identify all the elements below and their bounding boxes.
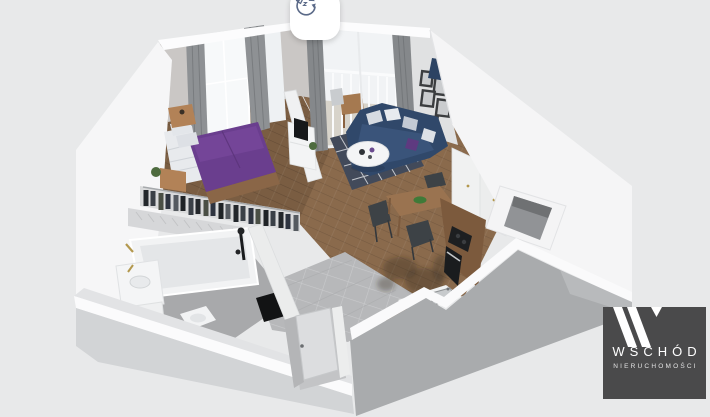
rotate-3d-icon xyxy=(290,0,320,20)
coffee-table xyxy=(347,142,389,173)
tv-screen xyxy=(294,118,308,141)
bowl xyxy=(414,196,427,203)
brand-tagline: NIERUCHOMOŚCI xyxy=(611,363,698,370)
entry xyxy=(284,306,350,390)
plant xyxy=(309,142,317,150)
balcony-chair xyxy=(330,88,344,106)
brand-watermark: WSCHÓD NIERUCHOMOŚCI xyxy=(603,307,706,399)
floorplan-viewer: WSCHÓD NIERUCHOMOŚCI xyxy=(0,0,710,417)
brand-monogram-icon xyxy=(603,307,665,347)
vanity-sink xyxy=(130,276,150,288)
entry-door xyxy=(296,308,338,380)
rotate-view-button[interactable] xyxy=(290,0,340,40)
plant xyxy=(151,167,161,177)
door-handle xyxy=(300,344,304,348)
cushion xyxy=(384,108,401,121)
